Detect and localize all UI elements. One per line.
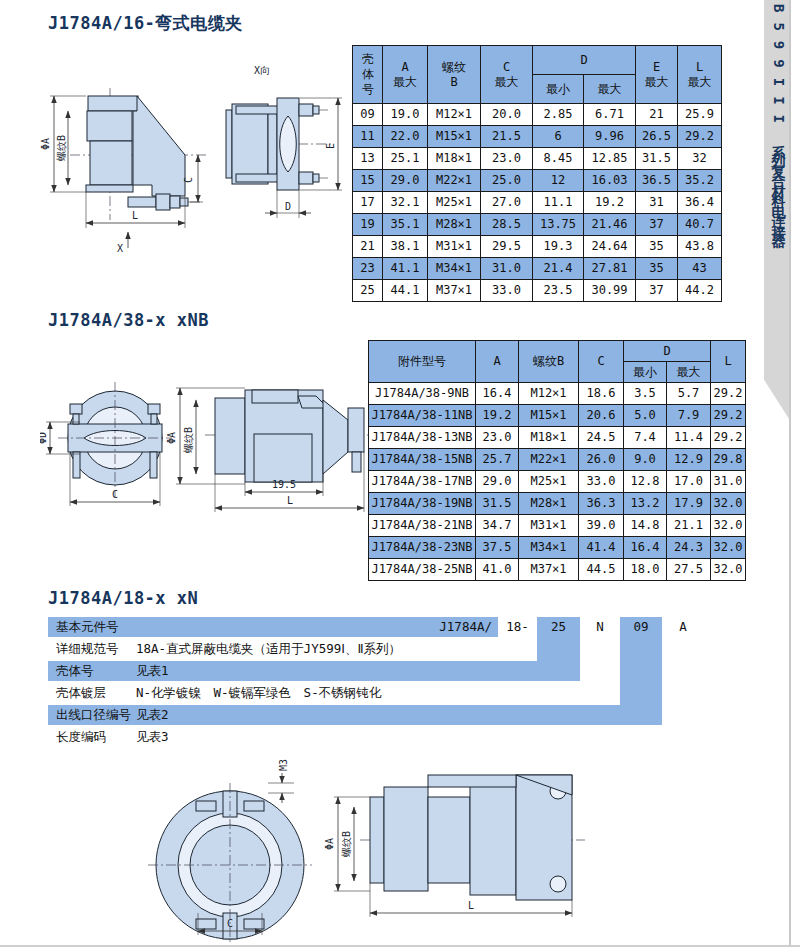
table-row: J1784A/38-23NB37.5M34×141.416.424.332.0	[369, 537, 746, 559]
table-cell: 9.96	[584, 126, 636, 148]
table-cell: 44.5	[579, 559, 624, 581]
pn-row-label: 基本元件号	[56, 617, 119, 637]
header-line: L	[696, 60, 703, 74]
table-row: J1784A/38-11NB19.2M15×120.65.07.929.2	[369, 405, 746, 427]
table-cell: 25.7	[476, 449, 519, 471]
table-cell: 7.4	[624, 427, 667, 449]
table-cell: 44.1	[383, 280, 428, 302]
pn-row-desc: 见表1	[136, 661, 169, 681]
table-cell: 41.1	[383, 258, 428, 280]
table-cell: M18×1	[428, 148, 481, 170]
col-header-model: 附件型号	[369, 341, 476, 383]
series-tab: B599III系列复合材料电连接器	[764, 0, 791, 422]
table-cell: 41.4	[579, 537, 624, 559]
datasheet-page: B599III系列复合材料电连接器 J1784A/16-弯式电缆夹 ΦA 螺纹B…	[0, 0, 800, 947]
table-cell: 15	[353, 170, 383, 192]
table-cell: M18×1	[519, 427, 579, 449]
table-cell: 38.1	[383, 236, 428, 258]
table-cell: 11.4	[667, 427, 711, 449]
table-cell: 21.4	[533, 258, 584, 280]
pn-code-seg2: 25	[537, 617, 580, 637]
table-cell: 21.5	[481, 126, 533, 148]
col-header-a: A	[476, 341, 519, 383]
table-cell: 9.0	[624, 449, 667, 471]
table-cell: 33.0	[481, 280, 533, 302]
table-cell: 19.2	[476, 405, 519, 427]
table-cell: J1784A/38-23NB	[369, 537, 476, 559]
pn-code-seg4: 09	[620, 617, 662, 637]
col-header-d-min: 最小	[624, 362, 667, 383]
table-cell: 32.0	[711, 515, 746, 537]
dim-label-phi-d: ΦD	[40, 432, 48, 444]
table-cell: 27.81	[584, 258, 636, 280]
table-cell: 17	[353, 192, 383, 214]
table-row: J1784A/38-19NB31.5M28×136.313.217.932.0	[369, 493, 746, 515]
straight-clamp-drawing: C ΦD ΦA 螺纹B 19.5 L	[40, 360, 370, 520]
table-cell: 12.9	[667, 449, 711, 471]
pn-row-label: 长度编码	[56, 727, 106, 747]
table-cell: 24.64	[584, 236, 636, 258]
table-cell: 29.0	[383, 170, 428, 192]
table-cell: 23.0	[476, 427, 519, 449]
table-cell: 17.0	[667, 471, 711, 493]
table-cell: 43.8	[678, 236, 722, 258]
table-cell: 26.5	[636, 126, 678, 148]
table-cell: M12×1	[519, 383, 579, 405]
table-cell: J1784A/38-25NB	[369, 559, 476, 581]
table-cell: 21	[636, 104, 678, 126]
table-cell: 41.0	[476, 559, 519, 581]
table-cell: 6	[533, 126, 584, 148]
table-row: 1529.0M22×125.01216.0336.535.2	[353, 170, 722, 192]
table-cell: 29.2	[678, 126, 722, 148]
table-cell: 17.9	[667, 493, 711, 515]
table-row: 1122.0M15×121.569.9626.529.2	[353, 126, 722, 148]
table-cell: 39.0	[579, 515, 624, 537]
col-header-c: C	[579, 341, 624, 383]
header-line: 螺纹	[442, 60, 466, 74]
table-cell: 35.1	[383, 214, 428, 236]
table-cell: M22×1	[428, 170, 481, 192]
table-cell: J1784A/38-13NB	[369, 427, 476, 449]
table-cell: 33.0	[579, 471, 624, 493]
dim-label-thread-b: 螺纹B	[183, 427, 194, 453]
table-cell: 16.4	[476, 383, 519, 405]
table-cell: 31.0	[711, 471, 746, 493]
table-row: J1784A/38-17NB29.0M25×133.012.817.031.0	[369, 471, 746, 493]
page-right-rule	[789, 0, 791, 947]
table-row: J1784A/38-9NB16.4M12×118.63.55.729.2	[369, 383, 746, 405]
table-cell: 37	[636, 214, 678, 236]
dim-label-l: L	[132, 210, 138, 221]
col-header-d-min: 最小	[533, 75, 584, 104]
section3-title: J1784A/18-x xN	[48, 588, 198, 608]
header-line: 最大	[393, 75, 417, 89]
dim-label-x: X	[117, 243, 123, 254]
table-cell: J1784A/38-19NB	[369, 493, 476, 515]
table-cell: 43	[678, 258, 722, 280]
table-cell: 27.0	[481, 192, 533, 214]
table-cell: 36.3	[579, 493, 624, 515]
shielded-clamp-drawing: M3 C ΦA 螺纹B L	[130, 745, 590, 945]
dim-label-thread-b: 螺纹B	[341, 831, 352, 857]
table-cell: 34.7	[476, 515, 519, 537]
table-cell: M12×1	[428, 104, 481, 126]
header-line: 最大	[645, 75, 669, 89]
dim-label-c: C	[112, 489, 118, 500]
col-header-d: D	[624, 341, 711, 362]
bent-clamp-dimension-table: 壳体号 A最大 螺纹B C最大 D E最大 L最大 最小 最大 0919.0M1…	[352, 45, 722, 302]
table-cell: 7.9	[667, 405, 711, 427]
table-cell: 25.0	[481, 170, 533, 192]
table-cell: 18.6	[579, 383, 624, 405]
table-cell: 20.6	[579, 405, 624, 427]
table-row: 1732.1M25×127.011.119.23136.4	[353, 192, 722, 214]
table-cell: 13	[353, 148, 383, 170]
pn-code-prefix: J1784A/	[378, 617, 492, 637]
table-cell: 5.7	[667, 383, 711, 405]
header-line: A	[401, 60, 408, 74]
series-tab-label: B599III系列复合材料电连接器	[770, 0, 788, 233]
table-cell: 29.0	[476, 471, 519, 493]
table-cell: 25.1	[383, 148, 428, 170]
table-row: 2544.1M37×133.023.530.993744.2	[353, 280, 722, 302]
table-cell: 32.1	[383, 192, 428, 214]
table-cell: M15×1	[519, 405, 579, 427]
table-row: 2341.1M34×131.021.427.813543	[353, 258, 722, 280]
col-header-d-max: 最大	[667, 362, 711, 383]
table-cell: J1784A/38-21NB	[369, 515, 476, 537]
table-cell: 13.75	[533, 214, 584, 236]
table-cell: M28×1	[428, 214, 481, 236]
table-cell: 18.0	[624, 559, 667, 581]
table-cell: 12	[533, 170, 584, 192]
table-cell: 29.2	[711, 427, 746, 449]
table-row: J1784A/38-15NB25.7M22×126.09.012.929.8	[369, 449, 746, 471]
table-cell: 32.0	[711, 493, 746, 515]
col-header-thread: 螺纹B	[519, 341, 579, 383]
table-row: J1784A/38-13NB23.0M18×124.57.411.429.2	[369, 427, 746, 449]
table-cell: M37×1	[428, 280, 481, 302]
pn-code-seg3: N	[580, 617, 620, 637]
dim-label-d: D	[285, 201, 291, 212]
dim-label-l: L	[468, 900, 474, 911]
table-cell: 8.45	[533, 148, 584, 170]
table-cell: 19	[353, 214, 383, 236]
col-header-l: L	[711, 341, 746, 383]
table-cell: 32.0	[711, 537, 746, 559]
pn-row-label: 出线口径编号	[56, 705, 131, 725]
table-cell: 31.5	[476, 493, 519, 515]
table-row: 1935.1M28×128.513.7521.463740.7	[353, 214, 722, 236]
pn-code-seg1: 18-	[498, 617, 537, 637]
table-cell: 37	[636, 280, 678, 302]
pn-row-desc: 见表3	[136, 727, 169, 747]
table-cell: M31×1	[428, 236, 481, 258]
table-cell: M34×1	[428, 258, 481, 280]
header-line: C	[503, 60, 510, 74]
table-cell: 19.0	[383, 104, 428, 126]
section1-title: J1784A/16-弯式电缆夹	[48, 12, 243, 35]
table-cell: 23	[353, 258, 383, 280]
table-cell: M37×1	[519, 559, 579, 581]
table-cell: 2.85	[533, 104, 584, 126]
table-cell: M31×1	[519, 515, 579, 537]
col-header-l: L最大	[678, 46, 722, 104]
table-cell: 23.0	[481, 148, 533, 170]
table-cell: 16.03	[584, 170, 636, 192]
pn-row-label: 详细规范号	[56, 639, 119, 659]
pn-row-label: 壳体镀层	[56, 683, 106, 703]
pn-code-seg5: A	[662, 617, 704, 637]
table-cell: 36.4	[678, 192, 722, 214]
col-header-d: D	[533, 46, 636, 75]
section2-title: J1784A/38-x xNB	[48, 310, 209, 330]
header-line: 最大	[688, 75, 712, 89]
col-header-e: E最大	[636, 46, 678, 104]
header-line: E	[653, 60, 660, 74]
header-line: B	[450, 75, 457, 89]
table-cell: 14.8	[624, 515, 667, 537]
table-cell: 31.5	[636, 148, 678, 170]
table-cell: 26.0	[579, 449, 624, 471]
dim-label-l: L	[287, 495, 293, 506]
table-cell: 29.8	[711, 449, 746, 471]
table-cell: 21	[353, 236, 383, 258]
table-cell: 32.0	[711, 559, 746, 581]
table-cell: 25.9	[678, 104, 722, 126]
col-header-shell: 壳体号	[353, 46, 383, 104]
table-row: 2138.1M31×129.519.324.643543.8	[353, 236, 722, 258]
table-cell: 29.2	[711, 405, 746, 427]
pn-row-desc: 见表2	[136, 705, 169, 725]
table-cell: 35	[636, 236, 678, 258]
table-cell: 21.46	[584, 214, 636, 236]
dim-label-phi-a: ΦA	[40, 138, 51, 150]
table-cell: 6.71	[584, 104, 636, 126]
table-cell: 29.5	[481, 236, 533, 258]
pn-row-desc: N-化学镀镍 W-镀镉军绿色 S-不锈钢钝化	[136, 683, 381, 703]
dim-label-phi-a: ΦA	[166, 432, 177, 444]
table-cell: 19.3	[533, 236, 584, 258]
col-header-c: C最大	[481, 46, 533, 104]
table-cell: 21.1	[667, 515, 711, 537]
table-cell: 40.7	[678, 214, 722, 236]
table-cell: 44.2	[678, 280, 722, 302]
table-cell: M25×1	[519, 471, 579, 493]
col-header-thread: 螺纹B	[428, 46, 481, 104]
table-cell: 24.5	[579, 427, 624, 449]
pn-row-label: 壳体号	[56, 661, 94, 681]
bent-clamp-drawing: ΦA 螺纹B C L X X向 E D	[40, 60, 350, 260]
table-cell: 20.0	[481, 104, 533, 126]
dim-label-c: C	[227, 918, 233, 929]
table-cell: 35.2	[678, 170, 722, 192]
dim-label-19-5: 19.5	[272, 479, 296, 490]
table-cell: 3.5	[624, 383, 667, 405]
view-label-x-direction: X向	[254, 65, 270, 76]
table-cell: J1784A/38-17NB	[369, 471, 476, 493]
table-cell: M25×1	[428, 192, 481, 214]
table-cell: 09	[353, 104, 383, 126]
table-cell: 24.3	[667, 537, 711, 559]
table-cell: J1784A/38-9NB	[369, 383, 476, 405]
dim-label-thread-b: 螺纹B	[56, 135, 67, 161]
part-number-breakdown: 基本元件号 详细规范号 壳体号 壳体镀层 出线口径编号 长度编码 18A-直式屏…	[48, 617, 708, 749]
table-cell: 11	[353, 126, 383, 148]
table-cell: M15×1	[428, 126, 481, 148]
table-cell: 32	[678, 148, 722, 170]
table-cell: 13.2	[624, 493, 667, 515]
table-cell: 5.0	[624, 405, 667, 427]
header-line: 最大	[495, 75, 519, 89]
table-cell: 31.0	[481, 258, 533, 280]
pn-highlight-row3	[48, 661, 580, 681]
table-row: J1784A/38-21NB34.7M31×139.014.821.132.0	[369, 515, 746, 537]
table-cell: 12.85	[584, 148, 636, 170]
table-cell: 23.5	[533, 280, 584, 302]
table-cell: J1784A/38-15NB	[369, 449, 476, 471]
table-row: 1325.1M18×123.08.4512.8531.532	[353, 148, 722, 170]
table-cell: 19.2	[584, 192, 636, 214]
table-cell: 12.8	[624, 471, 667, 493]
table-row: J1784A/38-25NB41.0M37×144.518.027.532.0	[369, 559, 746, 581]
table-cell: 27.5	[667, 559, 711, 581]
col-header-d-max: 最大	[584, 75, 636, 104]
table-cell: M28×1	[519, 493, 579, 515]
table-cell: 16.4	[624, 537, 667, 559]
table-cell: 30.99	[584, 280, 636, 302]
table-cell: J1784A/38-11NB	[369, 405, 476, 427]
table-cell: 22.0	[383, 126, 428, 148]
table-cell: 31	[636, 192, 678, 214]
table-cell: 29.2	[711, 383, 746, 405]
table-cell: 37.5	[476, 537, 519, 559]
table-cell: 35	[636, 258, 678, 280]
table-cell: 36.5	[636, 170, 678, 192]
pn-row-desc: 18A-直式屏蔽电缆夹（适用于JY599Ⅰ、Ⅱ系列）	[136, 639, 401, 659]
dim-label-phi-a: ΦA	[324, 838, 335, 850]
table-row: 0919.0M12×120.02.856.712125.9	[353, 104, 722, 126]
table-cell: M34×1	[519, 537, 579, 559]
table-cell: 28.5	[481, 214, 533, 236]
table-cell: 11.1	[533, 192, 584, 214]
col-header-a: A最大	[383, 46, 428, 104]
table-cell: 25	[353, 280, 383, 302]
table-cell: M22×1	[519, 449, 579, 471]
dim-label-m3: M3	[278, 759, 289, 771]
straight-clamp-dimension-table: 附件型号 A 螺纹B C D L 最小 最大 J1784A/38-9NB16.4…	[368, 340, 746, 581]
dim-label-e: E	[325, 143, 336, 149]
dim-label-c: C	[183, 177, 194, 183]
